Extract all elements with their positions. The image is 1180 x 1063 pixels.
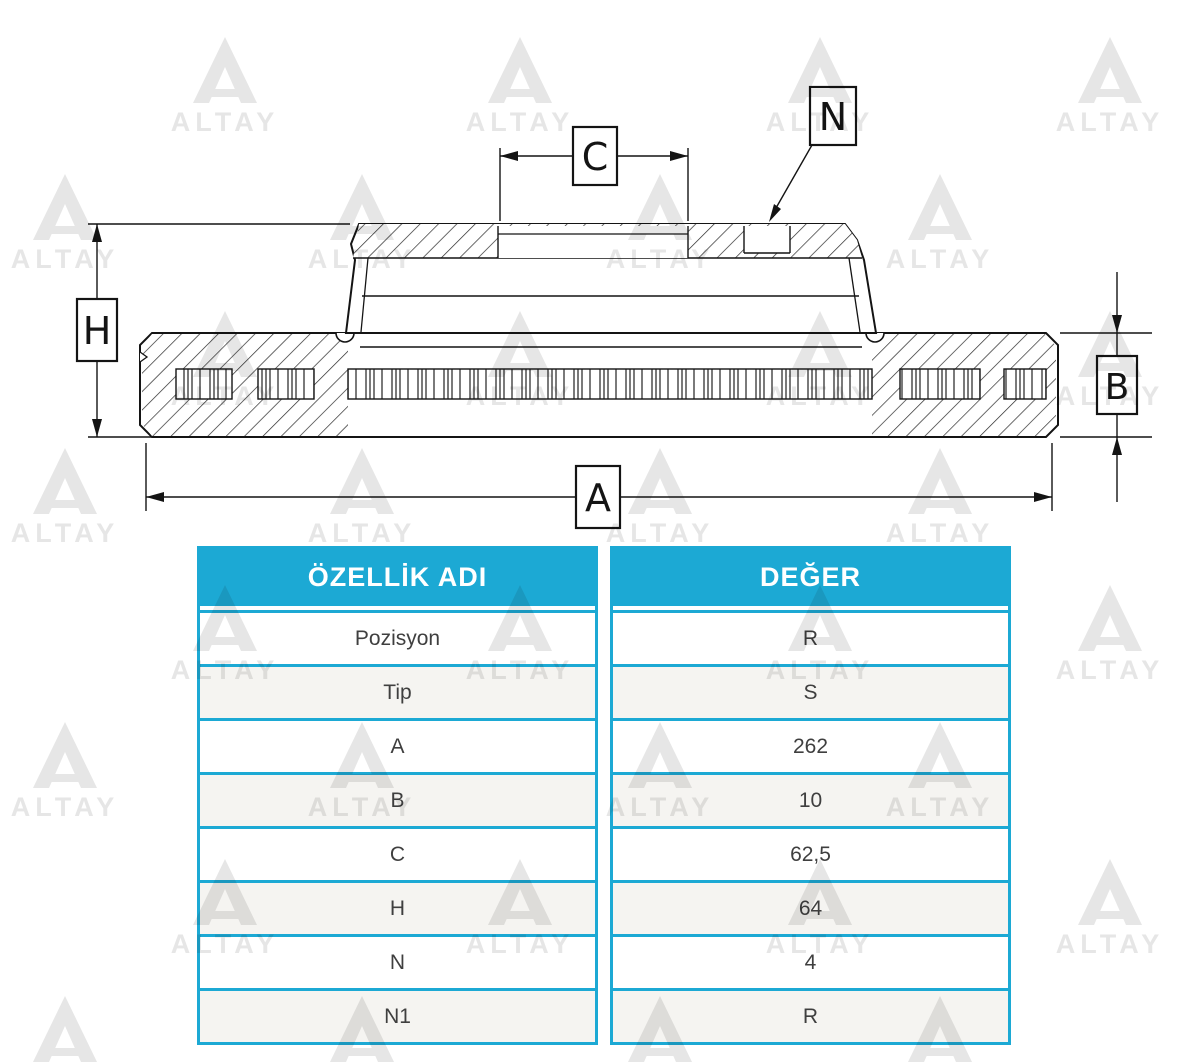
table-row: N1 <box>200 988 595 1042</box>
header-label: ÖZELLİK ADI <box>308 562 488 593</box>
arrowhead-up-icon <box>1112 437 1122 455</box>
friction-ring <box>140 333 1058 437</box>
cell-text: R <box>803 627 818 651</box>
property-name-table: ÖZELLİK ADI Pozisyon Tip A B C H N N1 <box>197 546 598 1045</box>
dimension-a: A <box>146 443 1052 528</box>
arrowhead-right-icon <box>670 151 688 161</box>
dimension-label-a: A <box>585 476 611 520</box>
table-row: A <box>200 718 595 772</box>
dimension-b: B <box>1060 272 1152 502</box>
property-value-table: DEĞER R S 262 10 62,5 64 4 R <box>610 546 1011 1045</box>
page: C N H B <box>0 0 1180 1063</box>
cell-text: B <box>390 789 404 813</box>
header-label: DEĞER <box>760 562 861 593</box>
cell-text: N <box>390 951 405 975</box>
cell-text: 262 <box>793 735 828 759</box>
cell-text: 64 <box>799 897 822 921</box>
table-row: Tip <box>200 664 595 718</box>
arrowhead-left-icon <box>146 492 164 502</box>
cell-text: C <box>390 843 405 867</box>
altay-watermark <box>1056 585 1165 685</box>
arrowhead-n-icon <box>769 204 781 222</box>
dimension-label-b: B <box>1105 367 1130 408</box>
cell-text: A <box>390 735 404 759</box>
table-row: 4 <box>613 934 1008 988</box>
table-row: 10 <box>613 772 1008 826</box>
altay-watermark <box>11 722 120 822</box>
table-row: 64 <box>613 880 1008 934</box>
table-row: H <box>200 880 595 934</box>
table-row: B <box>200 772 595 826</box>
cell-text: 4 <box>805 951 817 975</box>
cell-text: H <box>390 897 405 921</box>
dimension-label-h: H <box>83 309 112 353</box>
cell-text: R <box>803 1005 818 1029</box>
arrowhead-up-icon <box>92 224 102 242</box>
arrowhead-left-icon <box>500 151 518 161</box>
cell-text: 10 <box>799 789 822 813</box>
table-row: 262 <box>613 718 1008 772</box>
altay-watermark <box>11 996 120 1063</box>
table-row: S <box>613 664 1008 718</box>
hub <box>346 224 876 347</box>
table-row: R <box>613 988 1008 1042</box>
property-table-header: ÖZELLİK ADI <box>200 549 595 606</box>
dimension-c: C <box>500 127 688 221</box>
bolt-hole <box>744 226 790 253</box>
dimension-n: N <box>769 87 856 222</box>
dimension-label-c: C <box>582 135 609 179</box>
arrowhead-right-icon <box>1034 492 1052 502</box>
cell-text: 62,5 <box>790 843 831 867</box>
altay-watermark <box>1056 859 1165 959</box>
arrowhead-down-icon <box>1112 315 1122 333</box>
brake-disc-drawing: C N H B <box>0 0 1180 545</box>
vent-vanes <box>176 369 1046 399</box>
value-table-header: DEĞER <box>613 549 1008 606</box>
table-row: Pozisyon <box>200 610 595 664</box>
table-row: N <box>200 934 595 988</box>
cell-text: Tip <box>383 681 411 705</box>
dimension-label-n: N <box>819 95 847 139</box>
center-bore <box>498 226 688 258</box>
arrowhead-down-icon <box>92 419 102 437</box>
cell-text: Pozisyon <box>355 627 440 651</box>
table-row: 62,5 <box>613 826 1008 880</box>
table-row: C <box>200 826 595 880</box>
table-row: R <box>613 610 1008 664</box>
cell-text: N1 <box>384 1005 411 1029</box>
cell-text: S <box>803 681 817 705</box>
